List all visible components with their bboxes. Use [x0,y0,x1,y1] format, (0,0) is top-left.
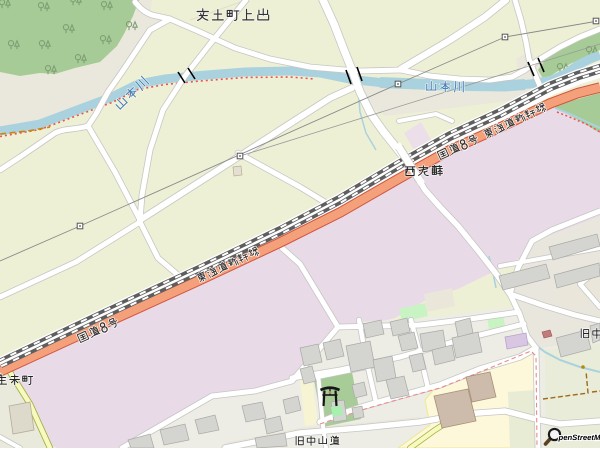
svg-text:penStreetMap: penStreetMap [558,433,600,442]
